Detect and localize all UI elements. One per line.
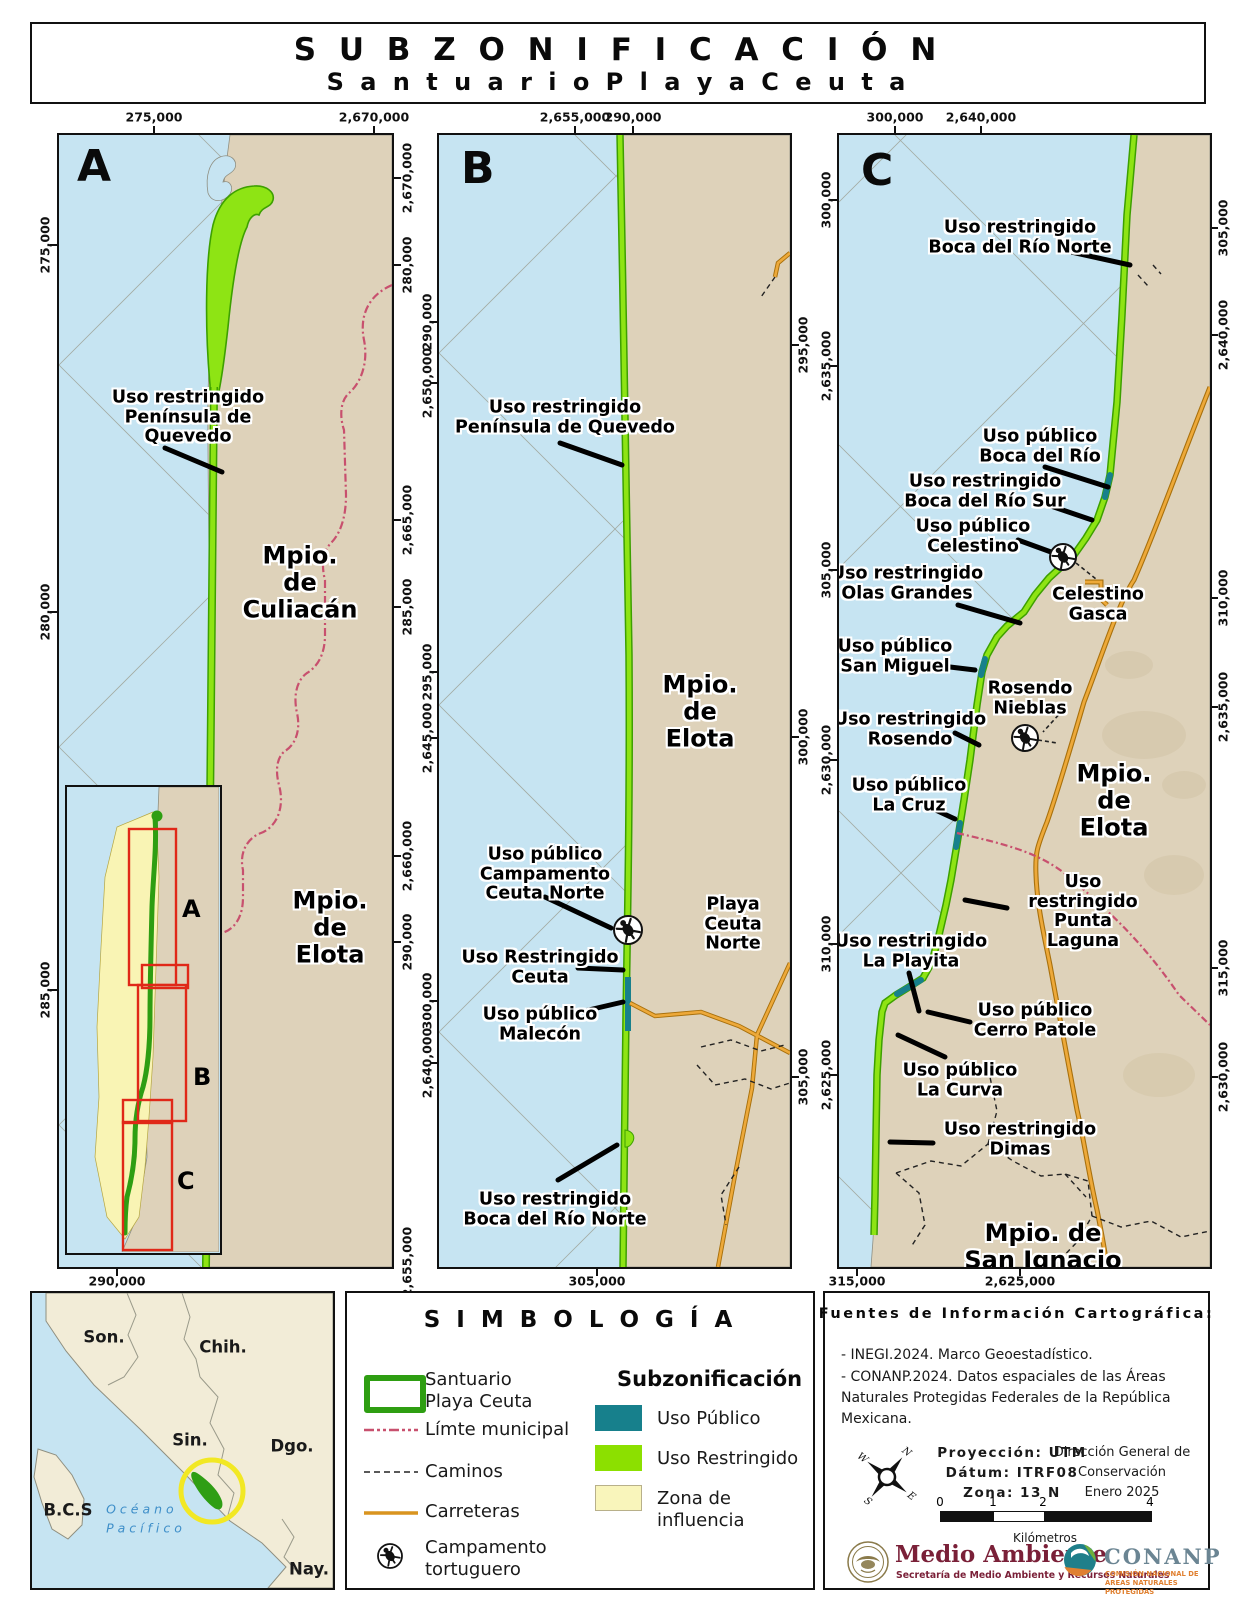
tick-mark: [830, 365, 837, 367]
tick-label: 2,660,000: [400, 821, 415, 891]
tick-mark: [373, 126, 375, 133]
tick-mark: [792, 344, 799, 346]
panel-letter-b: B: [461, 147, 495, 191]
tick-mark: [1211, 334, 1218, 336]
inset-letter-c: C: [177, 1167, 195, 1195]
tick-mark: [830, 199, 837, 201]
tick-mark: [394, 606, 401, 608]
label-uso-publico-boca-del-rio: Uso público Boca del Río: [979, 427, 1101, 466]
legend-swatch-publico: [595, 1405, 642, 1431]
inset-letter-a: A: [182, 895, 201, 923]
label-la-playita: Uso restringido La Playita: [837, 932, 987, 971]
tick-mark: [394, 855, 401, 857]
tick-mark: [50, 611, 57, 613]
label-boca-del-rio-norte-b: Uso restringido Boca del Río Norte: [463, 1190, 646, 1229]
subzonificacion-title: Subzonificación: [617, 1367, 802, 1391]
tick-mark: [430, 737, 437, 739]
scale-tick-2: 2: [1039, 1495, 1047, 1509]
compass-w: W: [855, 1451, 870, 1466]
legend-label-publico: Uso Público: [657, 1408, 761, 1430]
projection-datum: Dátum: ITRF08: [946, 1465, 1079, 1481]
tick-label: 2,670,000: [400, 143, 415, 213]
semarnat-seal-icon: [845, 1539, 891, 1585]
label-celestino-gasca: Celestino Gasca: [1052, 585, 1144, 624]
state-label-sinaloa: Sin.: [172, 1431, 208, 1450]
scale-segment-2: [994, 1512, 1044, 1521]
legend-title: S I M B O L O G Í A: [424, 1307, 737, 1333]
label-cerro-patole: Uso público Cerro Patole: [974, 1001, 1097, 1040]
tick-mark: [830, 943, 837, 945]
tick-label: 290,000: [605, 110, 662, 125]
legend-label-restringido: Uso Restringido: [657, 1448, 798, 1470]
legend-label-caminos: Caminos: [425, 1461, 503, 1483]
label-olas-grandes: Uso restringido Olas Grandes: [837, 564, 983, 603]
tick-label: 285,000: [400, 579, 415, 636]
tick-mark: [792, 736, 799, 738]
inset-index-map: A B C: [65, 785, 222, 1255]
tick-mark: [430, 1062, 437, 1064]
label-mpio-elota-c: Mpio. de Elota: [1066, 761, 1162, 842]
tick-mark: [394, 264, 401, 266]
tick-mark: [394, 519, 401, 521]
tick-mark: [1211, 1076, 1218, 1078]
label-dimas: Uso restringido Dimas: [944, 1120, 1096, 1159]
tick-mark: [980, 126, 982, 133]
tick-mark: [1019, 1269, 1021, 1276]
map-panel-a: A Uso restringido Península de Quevedo M…: [57, 133, 394, 1269]
label-san-miguel: Uso público San Miguel: [838, 637, 953, 676]
legend-label-zona: Zona de influencia: [657, 1488, 813, 1531]
source-conanp: - CONANP.2024. Datos espaciales de las Á…: [841, 1367, 1193, 1430]
tick-mark: [50, 244, 57, 246]
tick-mark: [830, 759, 837, 761]
turtle-camp-icon-rosendo: [1012, 725, 1038, 751]
tick-label: 2,670,000: [339, 110, 409, 125]
label-campamento-ceuta-norte: Uso público Campamento Ceuta Norte: [480, 846, 610, 905]
label-punta-laguna: Uso restringido Punta Laguna: [1020, 873, 1147, 951]
scale-tick-4: 4: [1146, 1495, 1154, 1509]
tick-mark: [50, 989, 57, 991]
legend-swatch-carreteras: [364, 1509, 418, 1517]
ocean-label: O c é a n o P a c í f i c o: [106, 1500, 182, 1538]
legend-label-campamento: Campamento tortuguero: [425, 1537, 547, 1580]
tick-mark: [430, 321, 437, 323]
compass-s: S: [862, 1495, 874, 1508]
map-title: S U B Z O N I F I C A C I Ó N: [32, 32, 1204, 68]
inset-letter-b: B: [193, 1063, 211, 1091]
conanp-wordmark: CONANP: [1104, 1544, 1221, 1569]
panel-letter-a: A: [77, 145, 111, 189]
tick-mark: [894, 126, 896, 133]
land-area: [205, 135, 392, 1267]
compass-e: E: [904, 1489, 918, 1503]
legend-swatch-santuario: [364, 1375, 426, 1413]
label-playa-ceuta-norte: Playa Ceuta Norte: [704, 896, 761, 955]
scale-bar: [940, 1511, 1152, 1522]
label-uso-publico-malecon: Uso público Malecón: [483, 1005, 598, 1044]
locator-map: Son. Chih. Sin. Dgo. B.C.S Nay. O c é a …: [30, 1291, 335, 1590]
label-mpio-elota-a: Mpio. de Elota: [293, 888, 368, 969]
tick-mark: [153, 126, 155, 133]
tick-mark: [632, 126, 634, 133]
tick-mark: [430, 382, 437, 384]
legend-swatch-limite: [364, 1427, 418, 1433]
map-sheet: S U B Z O N I F I C A C I Ó N S a n t u …: [0, 0, 1236, 1600]
source-inegi: - INEGI.2024. Marco Geoestadístico.: [841, 1345, 1193, 1366]
tick-mark: [596, 1269, 598, 1276]
state-label-nayarit: Nay.: [289, 1560, 329, 1579]
conanp-logo-icon: [1062, 1542, 1098, 1578]
tick-mark: [1211, 967, 1218, 969]
tick-mark: [116, 1269, 118, 1276]
scale-segment-1: [941, 1512, 994, 1521]
info-box: Fuentes de Información Cartográfica: - I…: [823, 1291, 1210, 1590]
tick-label: 2,665,000: [400, 485, 415, 555]
label-mpio-san-ignacio: Mpio. de San Ignacio: [964, 1220, 1121, 1269]
direction-line1: Dirección General de: [1054, 1445, 1191, 1460]
compass-n: N: [899, 1445, 914, 1460]
label-boca-del-rio-sur: Uso restringido Boca del Río Sur: [904, 472, 1065, 511]
state-label-chihuahua: Chih.: [199, 1338, 247, 1357]
state-label-sonora: Son.: [83, 1328, 124, 1347]
legend-swatch-restringido: [595, 1445, 642, 1471]
baja-peninsula: [34, 1449, 84, 1539]
direction-line2: Conservación: [1078, 1465, 1166, 1480]
legend-label-santuario: Santuario Playa Ceuta: [425, 1369, 532, 1412]
tick-mark: [430, 671, 437, 673]
tick-label: 2,655,000: [540, 110, 610, 125]
label-la-cruz: Uso público La Cruz: [852, 776, 967, 815]
label-rosendo-nieblas: Rosendo Nieblas: [988, 679, 1073, 718]
label-uso-publico-celestino: Uso público Celestino: [916, 517, 1031, 556]
label-uso-restringido-quevedo: Uso restringido Península de Quevedo: [86, 389, 290, 448]
label-mpio-culiacan: Mpio. de Culiacán: [243, 543, 358, 624]
tick-mark: [792, 1076, 799, 1078]
turtle-camp-icon: [614, 916, 642, 944]
tick-label: 290,000: [400, 914, 415, 971]
legend-swatch-caminos: [364, 1469, 418, 1475]
state-label-durango: Dgo.: [270, 1437, 313, 1456]
tick-mark: [430, 1000, 437, 1002]
tick-mark: [856, 1269, 858, 1276]
legend-swatch-zona: [595, 1485, 642, 1511]
label-boca-del-rio-norte-c: Uso restringido Boca del Río Norte: [928, 218, 1111, 257]
inset-sanctuary-head: [152, 811, 163, 822]
tick-mark: [1211, 227, 1218, 229]
map-subtitle: S a n t u a r i o P l a y a C e u t a: [32, 68, 1204, 96]
panel-letter-c: C: [861, 149, 893, 193]
tick-label: 2,640,000: [946, 110, 1016, 125]
compass-rose: N E S W: [851, 1441, 923, 1513]
label-uso-restringido-rosendo: Uso restringido Rosendo: [837, 710, 986, 749]
turtle-camp-icon-celestino: [1050, 544, 1076, 570]
tick-mark: [574, 126, 576, 133]
tick-mark: [830, 1074, 837, 1076]
legend-label-limite: Límte municipal: [425, 1419, 569, 1441]
map-panel-b: B Uso restringido Península de Quevedo M…: [437, 133, 792, 1269]
map-panel-c: C Uso restringido Boca del Río Norte Uso…: [837, 133, 1212, 1269]
state-label-bcs: B.C.S: [43, 1501, 92, 1520]
turtle-camp-legend-icon: [373, 1539, 407, 1573]
tick-mark: [394, 177, 401, 179]
label-uso-restringido-ceuta: Uso Restringido Ceuta: [461, 948, 618, 987]
tick-label: 2,655,000: [400, 1227, 415, 1297]
sources-title: Fuentes de Información Cartográfica:: [819, 1306, 1215, 1322]
tick-label: 300,000: [867, 110, 924, 125]
label-uso-restringido-quevedo-b: Uso restringido Península de Quevedo: [455, 398, 675, 437]
title-box: S U B Z O N I F I C A C I Ó N S a n t u …: [30, 22, 1206, 104]
scale-tick-0: 0: [936, 1495, 944, 1509]
label-la-curva: Uso público La Curva: [903, 1061, 1018, 1100]
legend-label-carreteras: Carreteras: [425, 1501, 520, 1523]
tick-label: 275,000: [126, 110, 183, 125]
tick-mark: [1211, 597, 1218, 599]
legend-box: S I M B O L O G Í A Santuario Playa Ceut…: [345, 1291, 815, 1590]
scale-tick-1: 1: [989, 1495, 997, 1509]
conanp-subtitle: COMISIÓN NACIONAL DE ÁREAS NATURALES PRO…: [1105, 1570, 1215, 1598]
tick-mark: [1211, 706, 1218, 708]
tick-mark: [394, 941, 401, 943]
label-mpio-elota-b: Mpio. de Elota: [655, 672, 745, 753]
tick-label: 280,000: [400, 237, 415, 294]
scale-segment-3: [1044, 1512, 1151, 1521]
inset-map-art: [67, 787, 219, 1252]
tick-mark: [830, 569, 837, 571]
